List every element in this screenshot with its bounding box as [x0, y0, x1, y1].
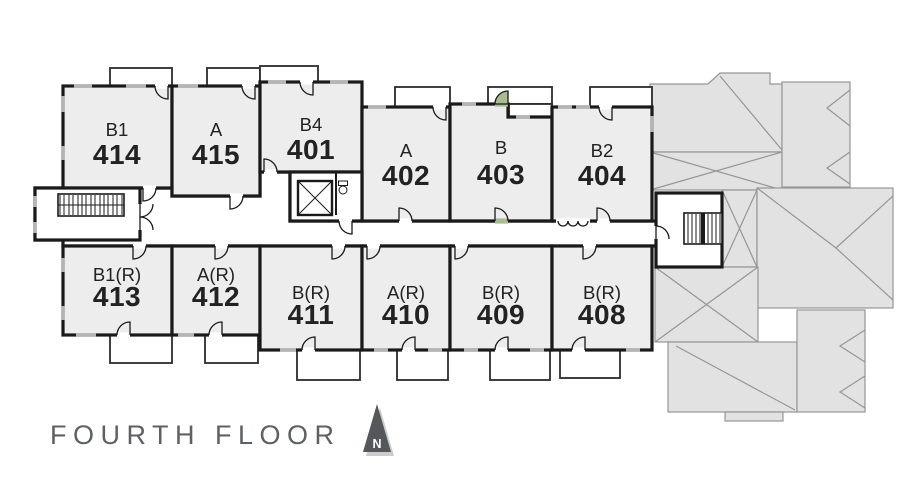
- north-compass-icon: N: [363, 404, 394, 456]
- unit-403-number-label: 403: [477, 159, 525, 190]
- unit-413-number-label: 413: [93, 281, 141, 312]
- unit-415-type-label: A: [210, 119, 223, 140]
- unit-409-number-label: 409: [477, 299, 525, 330]
- floor-plan-page: B1 414 A 415 B4 401 A 402 B 403 B2 404 B…: [0, 0, 900, 485]
- balcony: [490, 350, 550, 380]
- balcony: [205, 335, 258, 363]
- balcony: [297, 350, 360, 380]
- unit-402-type-label: A: [400, 140, 413, 161]
- unit-401-number-label: 401: [287, 134, 335, 165]
- elevator-lobby: [290, 172, 362, 221]
- unit-411-number-label: 411: [288, 299, 335, 330]
- balcony: [110, 68, 172, 86]
- balcony: [397, 350, 448, 380]
- unit-414-type-label: B1: [106, 119, 129, 140]
- unit-402-number-label: 402: [382, 160, 430, 191]
- unit-408-number-label: 408: [578, 299, 626, 330]
- balcony: [110, 335, 172, 363]
- balcony: [395, 87, 450, 107]
- balcony: [509, 104, 552, 117]
- unit-410-number-label: 410: [382, 299, 430, 330]
- floor-plan-svg: B1 414 A 415 B4 401 A 402 B 403 B2 404 B…: [0, 0, 900, 485]
- unit-403-type-label: B: [495, 137, 507, 158]
- footer: FOURTH FLOOR N: [50, 404, 394, 456]
- unit-404-type-label: B2: [591, 140, 614, 161]
- floor-title: FOURTH FLOOR: [50, 420, 341, 450]
- unit-401-type-label: B4: [300, 114, 323, 135]
- balcony: [207, 68, 260, 86]
- unit-412-number-label: 412: [192, 281, 240, 312]
- balcony: [560, 350, 620, 378]
- unit-415-number-label: 415: [192, 139, 240, 170]
- unit-404-number-label: 404: [578, 160, 626, 191]
- unit-414-number-label: 414: [93, 139, 141, 170]
- balcony: [590, 87, 652, 107]
- left-stairwell: [35, 188, 140, 240]
- north-label: N: [372, 437, 381, 451]
- stair-rail: [701, 213, 705, 244]
